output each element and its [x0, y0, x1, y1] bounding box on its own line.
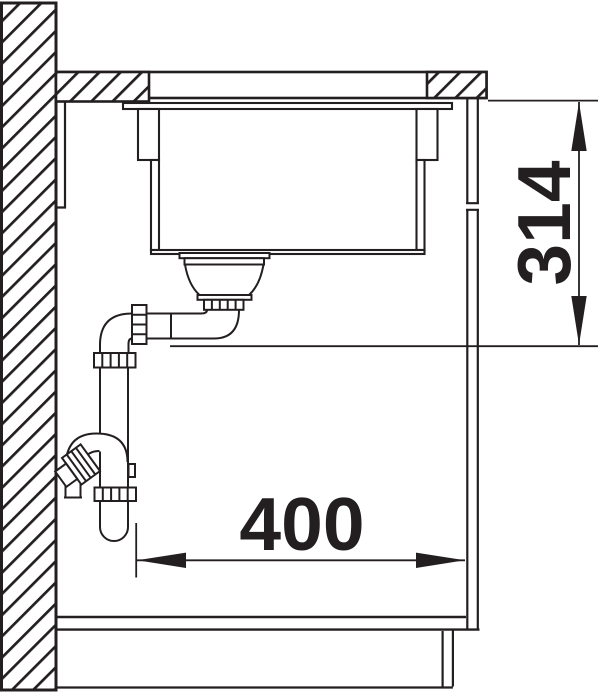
- dimension-314-label: 314: [502, 160, 586, 285]
- bowl-left-wall-upper: [138, 109, 159, 160]
- countertop: [56, 72, 487, 102]
- standpipe-coupling-nut-lower: [95, 488, 137, 502]
- wall-section-hatched: [2, 3, 57, 690]
- elbow-coupling-nut: [132, 305, 147, 344]
- bowl-left-wall-lower: [151, 160, 159, 250]
- technical-drawing-canvas: 314 400: [0, 0, 600, 692]
- bowl-right-wall-upper: [417, 109, 438, 160]
- standpipe-nut-lower-body: [95, 488, 137, 502]
- strainer-funnel: [185, 265, 264, 296]
- trap-clip-tab: [129, 464, 136, 477]
- sink-mounting-flange: [123, 103, 452, 109]
- drain-locknut-body: [204, 300, 244, 310]
- dimension-400-label: 400: [239, 482, 364, 566]
- standpipe-nut-upper-body: [94, 353, 136, 368]
- standpipe-coupling-nut-upper: [94, 353, 136, 368]
- countertop-section-left: [56, 72, 149, 102]
- bowl-right-wall-lower: [417, 160, 425, 250]
- countertop-section-right: [427, 72, 487, 98]
- sink-installation-section-drawing: 314 400: [0, 0, 600, 692]
